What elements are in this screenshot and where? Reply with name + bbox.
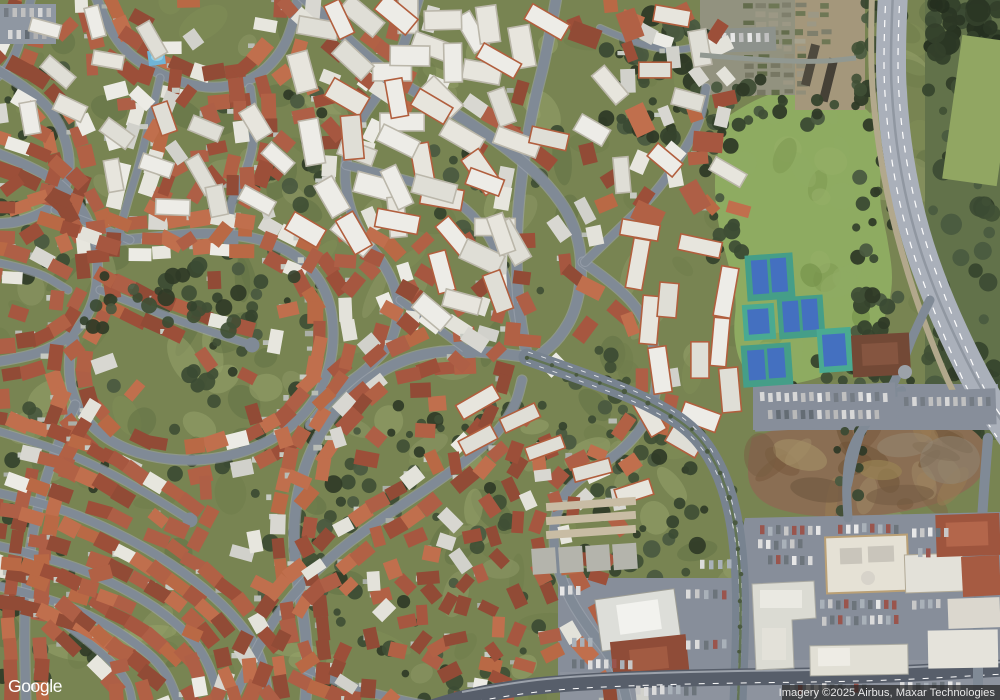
svg-text:Google: Google <box>8 676 62 696</box>
svg-text:Imagery ©2025 Airbus, Maxar Te: Imagery ©2025 Airbus, Maxar Technologies <box>779 687 996 699</box>
